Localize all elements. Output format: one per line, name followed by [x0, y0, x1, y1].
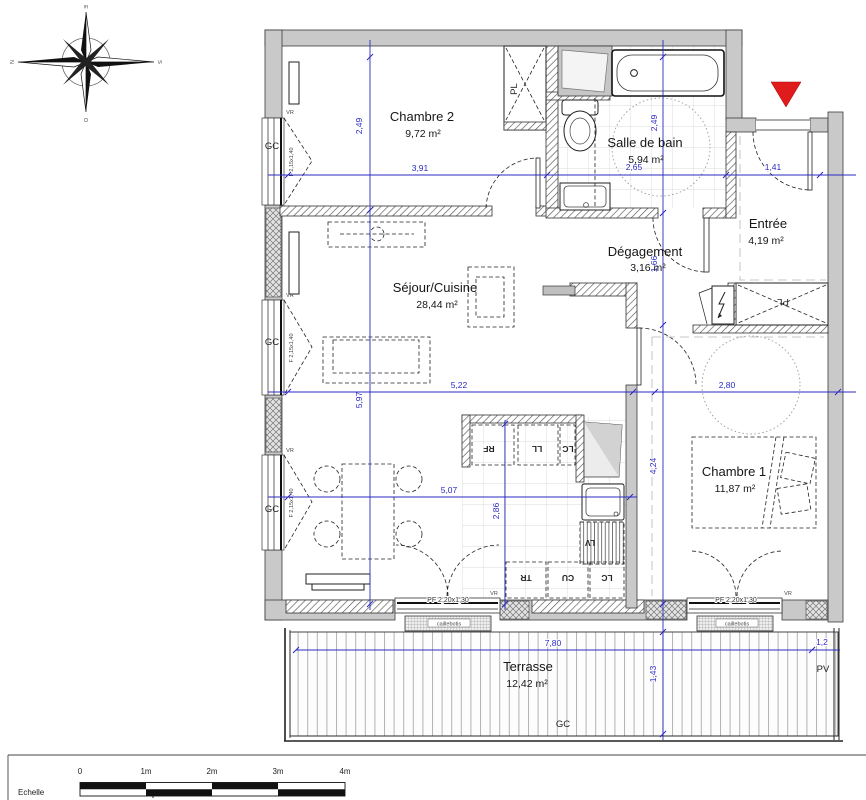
closet-label: PL [777, 296, 789, 307]
window-spec: F 2,15x1,40 [289, 333, 295, 362]
sofa [323, 337, 430, 383]
compass-letter-top: E [82, 5, 88, 9]
terrace: Terrasse 12,42 m² GC PV [284, 628, 843, 741]
room-name-chambre2: Chambre 2 [390, 109, 454, 124]
tr-label: TR [520, 573, 531, 583]
room-area-chambre1: 11,87 m² [715, 483, 756, 495]
window-spec: PF 2,20x1,30 [427, 597, 469, 604]
room-name-salle-bain: Salle de bain [607, 135, 682, 150]
room-area-chambre2: 9,72 m² [405, 128, 441, 140]
room-area-degagement: 3,16 m² [630, 262, 666, 274]
dishwasher-label: LV [585, 538, 596, 548]
room-name-degagement: Dégagement [608, 244, 683, 259]
electrical-panel [699, 286, 734, 324]
compass-rose: E S O N [8, 5, 162, 123]
room-area-terrasse: 12,42 m² [506, 678, 548, 690]
window-spec: F 2,15x1,40 [289, 147, 295, 176]
dishwasher: LV [580, 522, 624, 564]
dim-cuisine-height: 2,86 [491, 502, 501, 519]
tv-unit [328, 222, 425, 247]
shutter-label: VR [286, 448, 294, 454]
toilet [562, 100, 598, 151]
scale-tick-2: 2m [206, 767, 217, 776]
shutter-label: VR [490, 591, 498, 597]
shower [558, 46, 612, 96]
floor-plan-drawing: E S O N PL PL [0, 0, 866, 800]
dim-bain-height: 2,49 [649, 114, 659, 131]
dining-table [314, 464, 422, 559]
dim-sejour-width: 5,22 [451, 380, 468, 390]
room-area-entree: 4,19 m² [748, 235, 784, 247]
guardrail-label: GC [265, 337, 279, 348]
window-spec: F 2,15x1,40 [289, 488, 295, 517]
closet-chambre2: PL [504, 46, 546, 130]
closet-label: PL [509, 83, 520, 95]
fridge-label: RF [483, 444, 494, 454]
room-name-sejour: Séjour/Cuisine [393, 280, 478, 295]
pillow [777, 484, 811, 514]
scale-bar [80, 783, 345, 797]
radiator-sejour [289, 232, 299, 294]
floor-plan-page: E S O N PL PL [0, 0, 866, 800]
scale-tick-0: 0 [78, 767, 83, 776]
dim-chambre2-width: 3,91 [412, 163, 429, 173]
window-spec: PF 2,20x1,30 [715, 597, 757, 604]
privacy-screen-label: PV [817, 664, 830, 675]
room-name-entree: Entrée [749, 216, 787, 231]
compass-letter-right: S [156, 60, 162, 64]
radiator-chambre2 [289, 62, 299, 104]
entrance-arrow-icon [771, 82, 801, 107]
room-name-chambre1: Chambre 1 [702, 464, 766, 479]
french-window-chambre1: PF 2,20x1,30 VR caillebotis SEUIL [687, 551, 792, 642]
tall-cabinet [584, 422, 622, 477]
compass-letter-bottom: O [82, 118, 88, 123]
room-area-sejour: 28,44 m² [416, 299, 458, 311]
shutter-label: VR [286, 110, 294, 116]
lc2-label: LC [601, 573, 612, 583]
dim-chambre2-height: 2,49 [354, 117, 364, 134]
dim-terrasse-side: 1,2 [816, 637, 828, 647]
room-name-terrasse: Terrasse [503, 659, 553, 674]
grating-label: caillebotis [725, 622, 749, 628]
closet-entree: PL [728, 283, 828, 325]
guardrail-label: GC [265, 504, 279, 515]
compass-letter-left: N [8, 60, 14, 64]
washer-label: LL [532, 444, 542, 454]
entrance-marker [771, 82, 801, 107]
guardrail-label: GC [265, 141, 279, 152]
window-sejour-1: GC F 2,15x1,40 VR [262, 293, 312, 395]
pillow [781, 452, 816, 484]
turning-circle-chambre1 [702, 336, 800, 434]
window-sejour-2: GC F 2,15x1,40 VR [262, 448, 312, 550]
bench [306, 574, 370, 590]
dim-chambre1-height: 4,24 [648, 457, 658, 474]
lc-label: LC [562, 444, 573, 454]
scale-tick-1: 1m [140, 767, 151, 776]
dim-entree-width: 1,41 [765, 162, 782, 172]
shutter-label: VR [784, 591, 792, 597]
dim-terrasse-depth: 1,43 [648, 665, 658, 682]
cu-label: CU [562, 573, 574, 583]
grating-label: caillebotis [437, 622, 461, 628]
room-area-salle-bain: 5,94 m² [628, 154, 664, 166]
guardrail-label: GC [556, 719, 570, 730]
scale-tick-4: 4m [339, 767, 350, 776]
dim-terrasse-width: 7,80 [545, 638, 562, 648]
dim-dining-width: 5,07 [441, 485, 458, 495]
dim-chambre1-width: 2,80 [719, 380, 736, 390]
kitchen-sink [582, 484, 624, 520]
dim-sejour-height: 5,97 [354, 391, 364, 408]
scale-tick-3: 3m [272, 767, 283, 776]
bathtub [612, 50, 724, 96]
window-chambre2: GC F 2,15x1,40 VR [262, 110, 312, 205]
bathroom-sink [560, 183, 610, 210]
armchair [468, 267, 514, 327]
title-block: Echelle 0 1m 2m 3m 4m [8, 755, 866, 800]
scale-label: Echelle [18, 788, 45, 797]
